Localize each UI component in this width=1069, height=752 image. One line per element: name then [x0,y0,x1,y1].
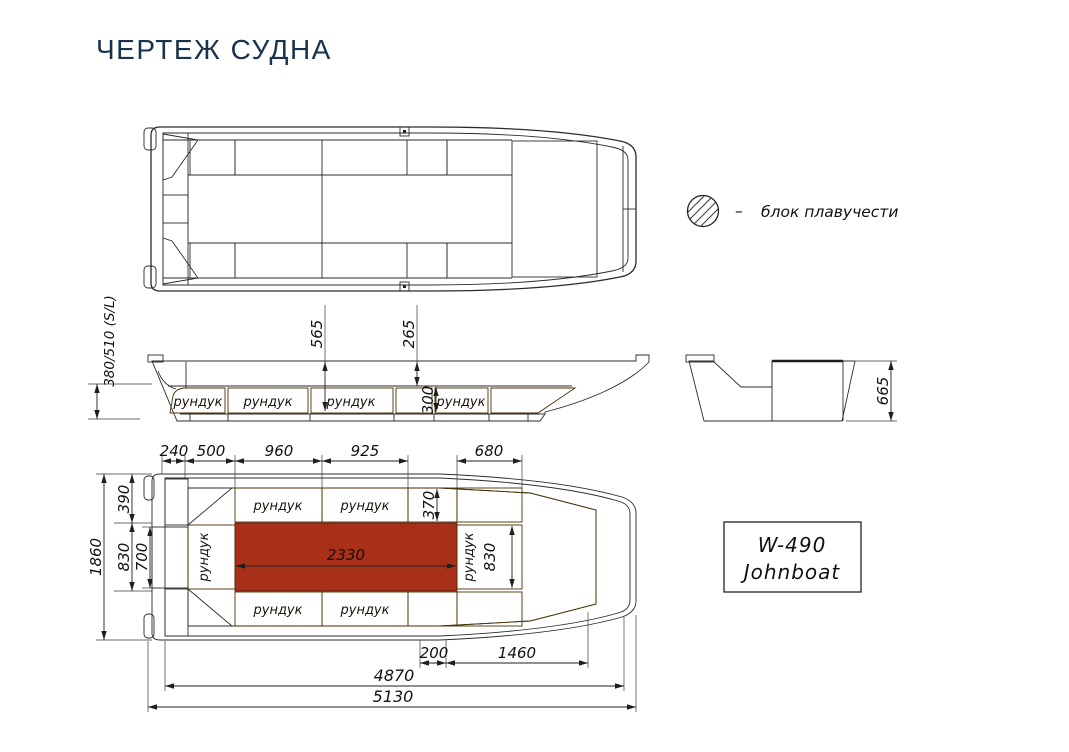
dim-665: 665 [874,377,892,406]
dim-265: 265 [400,320,418,349]
stern-bracket-bottom [144,266,156,288]
dim-960: 960 [265,442,294,460]
locker-label: рундук [253,499,303,514]
side-view-structure-lines [158,362,572,421]
stern-bracket-top [144,128,156,150]
top-view-hull-outline [151,127,636,291]
dim-830-left: 830 [115,543,133,572]
buoyancy-block-symbol [688,196,719,227]
dim-1460: 1460 [498,644,536,662]
boat-drawing-page: ЧЕРТЕЖ СУДНА [0,0,1069,752]
locker-label: рундук [173,395,223,410]
dim-500: 500 [197,442,226,460]
model-name: W-490 [758,533,827,557]
locker-label: рундук [197,532,212,582]
legend: – блок плавучести [688,196,899,227]
locker-label: рундук [436,395,486,410]
side-view: рундук рундук рундук рундук 565 265 300 … [88,295,649,421]
dim-680: 680 [475,442,504,460]
legend-label: блок плавучести [761,203,898,221]
dim-freeboard: 380/510 (S/L) [102,295,118,387]
locker-label: рундук [340,603,390,618]
stern-transom-pieces [152,479,232,636]
dim-370: 370 [420,491,438,520]
transom-view: 665 [686,355,897,421]
deck-fittings [400,127,409,291]
locker-label: рундук [462,532,477,582]
dim-390: 390 [115,485,133,514]
motor-well-top-view [163,195,188,223]
dim-300: 300 [419,386,437,415]
model-type: Johnboat [740,560,841,584]
dim-4870: 4870 [374,666,415,685]
locker-label: рундук [253,603,303,618]
locker-label: рундук [243,395,293,410]
locker-label: рундук [326,395,376,410]
top-view-structure-lines [163,133,636,285]
motor-well [152,527,188,588]
buoyancy-blocks-top-view [163,134,597,284]
dim-565: 565 [308,320,326,349]
dim-240: 240 [160,442,189,460]
top-view-gunwale-inner-line [163,133,628,285]
dim-5130: 5130 [373,687,414,706]
top-view [144,127,636,291]
model-label-box: W-490 Johnboat [724,522,861,592]
plan-view: рундук рундук рундук рундук рундук рунду… [87,442,636,712]
dim-200: 200 [420,644,449,662]
legend-separator: – [735,202,743,220]
boat-drawing: – блок плавучести [0,0,1069,752]
dim-925: 925 [351,442,380,460]
dim-1860: 1860 [87,538,105,576]
dim-700: 700 [133,543,151,572]
dim-2330: 2330 [327,546,365,564]
dim-830-right: 830 [481,543,499,572]
locker-label: рундук [340,499,390,514]
